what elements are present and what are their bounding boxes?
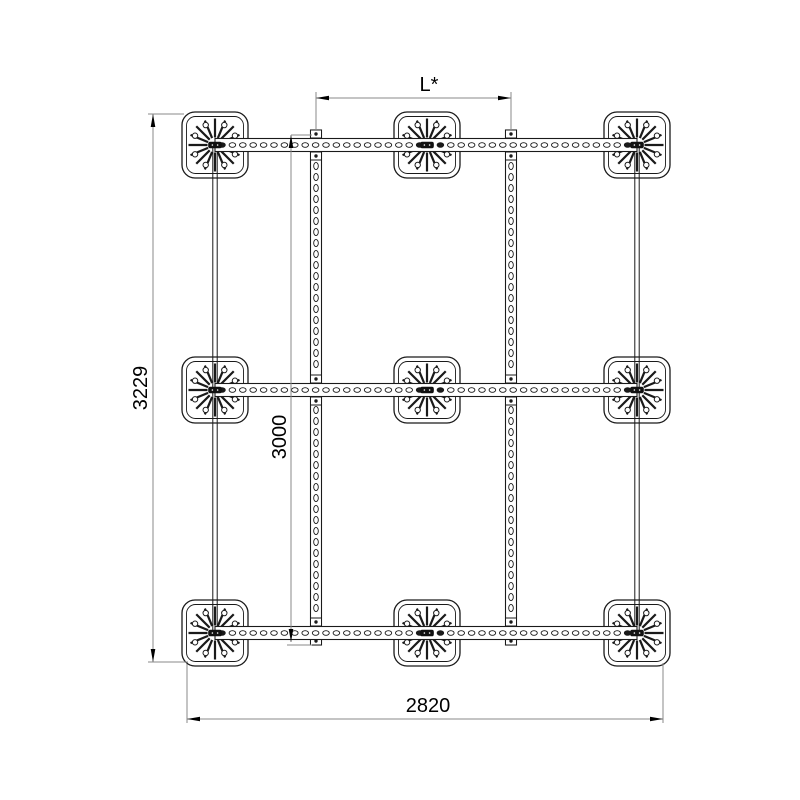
plate-bolt-hole	[232, 621, 237, 626]
rail-slot	[281, 631, 288, 636]
rail-slot	[448, 631, 455, 636]
rail-slot	[448, 388, 455, 393]
rail-slot	[396, 631, 403, 636]
plate-bolt-hole	[222, 650, 227, 655]
rail-slot	[583, 631, 590, 636]
hub-detail-dot	[217, 144, 219, 146]
rail-slot	[314, 250, 319, 257]
plate-hub	[208, 142, 222, 149]
rail-slot	[604, 388, 611, 393]
rail-slot	[437, 631, 444, 636]
rail-slot	[314, 195, 319, 202]
rail-slot	[364, 631, 371, 636]
rail-slot	[312, 631, 319, 636]
plate-hub	[630, 142, 644, 149]
rail-slot	[314, 483, 319, 490]
hub-block	[630, 630, 644, 637]
rail-slot	[552, 143, 559, 148]
rail-slot	[281, 388, 288, 393]
plate-bolt-hole	[644, 122, 649, 127]
hub-detail-dot	[429, 389, 431, 391]
rail-cap-bolt	[509, 399, 512, 402]
plate-bolt-hole	[415, 610, 420, 615]
rail-slot	[509, 527, 514, 534]
plate-bolt-hole	[434, 122, 439, 127]
hub-block	[208, 387, 222, 394]
plate-bolt-hole	[654, 378, 659, 383]
plate-bolt-hole	[654, 152, 659, 157]
plate-bolt-hole	[232, 152, 237, 157]
rail-slot	[229, 388, 236, 393]
plate-bolt-hole	[203, 367, 208, 372]
rail-slot	[271, 388, 278, 393]
rail-slot	[509, 560, 514, 567]
plate-bolt-hole	[192, 640, 197, 645]
hub-detail-dot	[639, 389, 641, 391]
plate-bolt-hole	[434, 162, 439, 167]
rail-slot	[509, 173, 514, 180]
rail-slot	[314, 327, 319, 334]
rail-slot	[541, 388, 548, 393]
rail-slot	[323, 388, 330, 393]
rail-slot	[562, 631, 569, 636]
rail-slot	[314, 428, 319, 435]
hub-block	[420, 142, 434, 149]
rail-slot	[510, 631, 517, 636]
rail-slot	[344, 631, 351, 636]
rail-slot	[520, 388, 527, 393]
plate-bolt-hole	[625, 650, 630, 655]
plate-hub	[420, 630, 434, 637]
plate-bolt-hole	[434, 610, 439, 615]
rail-slot	[593, 143, 600, 148]
plate-bolt-hole	[625, 407, 630, 412]
plate-bolt-hole	[654, 640, 659, 645]
rail-slot	[510, 388, 517, 393]
rail-slot	[509, 327, 514, 334]
plate-bolt-hole	[614, 640, 619, 645]
rail-slot	[314, 338, 319, 345]
rail-slot	[479, 143, 486, 148]
plate-bolt-hole	[232, 378, 237, 383]
plate-bolt-hole	[434, 407, 439, 412]
rail-slot	[520, 631, 527, 636]
plate-bolt-hole	[192, 152, 197, 157]
rail-slot	[260, 631, 267, 636]
rail-slot	[468, 631, 475, 636]
rail-slot	[314, 505, 319, 512]
rail-slot	[614, 631, 621, 636]
rail-slot	[375, 631, 382, 636]
dimension-arrow	[498, 96, 511, 101]
plate-bolt-hole	[415, 367, 420, 372]
rail-slot	[624, 388, 631, 393]
rail-slot	[541, 631, 548, 636]
rail-slot	[229, 631, 236, 636]
hub-detail-dot	[634, 389, 636, 391]
plate-bolt-hole	[644, 407, 649, 412]
rail-slot	[500, 388, 507, 393]
rail-slot	[314, 560, 319, 567]
rail-slot	[531, 143, 538, 148]
rail-slot	[354, 388, 361, 393]
rail-slot	[314, 349, 319, 356]
hub-detail-dot	[634, 632, 636, 634]
rail-slot	[593, 631, 600, 636]
rail-slot	[333, 631, 340, 636]
hub-detail-dot	[639, 632, 641, 634]
rail-slot	[271, 631, 278, 636]
rail-slot	[531, 631, 538, 636]
rail-slot	[509, 461, 514, 468]
rail-slot	[260, 143, 267, 148]
rail-slot	[458, 631, 465, 636]
rail-slot	[333, 388, 340, 393]
rail-slot	[271, 143, 278, 148]
plate-bolt-hole	[415, 650, 420, 655]
rail-slot	[572, 631, 579, 636]
rail-slot	[500, 143, 507, 148]
rail-slot	[572, 388, 579, 393]
rail-slot	[479, 388, 486, 393]
rail-slot	[541, 143, 548, 148]
plate-bolt-hole	[203, 610, 208, 615]
rail-slot	[240, 631, 247, 636]
rail-slot	[509, 360, 514, 367]
plate-bolt-hole	[404, 397, 409, 402]
rail-slot	[314, 217, 319, 224]
rail-slot	[468, 143, 475, 148]
plate-bolt-hole	[444, 378, 449, 383]
hub-detail-dot	[424, 389, 426, 391]
rail-slot	[314, 527, 319, 534]
rail-slot	[314, 283, 319, 290]
rail-slot	[314, 461, 319, 468]
rail-slot	[314, 549, 319, 556]
rail-slot	[314, 538, 319, 545]
dimension-arrow	[151, 114, 156, 127]
plate-bolt-hole	[415, 122, 420, 127]
rail-slot	[448, 143, 455, 148]
rail-slot	[314, 173, 319, 180]
rail-slot	[509, 184, 514, 191]
rail-slot	[509, 261, 514, 268]
rail-slot	[437, 143, 444, 148]
hub-block	[420, 387, 434, 394]
plate-bolt-hole	[625, 367, 630, 372]
rail-slot	[624, 631, 631, 636]
rail-slot	[509, 450, 514, 457]
rail-slot	[344, 143, 351, 148]
rail-slot	[509, 316, 514, 323]
rail-slot	[250, 143, 257, 148]
rail-slot	[572, 143, 579, 148]
hub-detail-dot	[634, 144, 636, 146]
plate-bolt-hole	[192, 133, 197, 138]
rail-slot	[520, 143, 527, 148]
dimension-arrow	[316, 96, 329, 101]
hub-block	[208, 142, 222, 149]
rail-slot	[314, 206, 319, 213]
rail-slot	[509, 417, 514, 424]
rail-cap-bolt	[314, 620, 317, 623]
rail-slot	[468, 388, 475, 393]
rail-slot	[509, 349, 514, 356]
dimension-label-top-span: L*	[420, 74, 439, 96]
plate-bolt-hole	[654, 397, 659, 402]
hub-block	[630, 387, 644, 394]
rail-slot	[509, 604, 514, 611]
rail-slot	[458, 143, 465, 148]
plate-hub	[630, 387, 644, 394]
plate-bolt-hole	[203, 122, 208, 127]
rail-slot	[314, 571, 319, 578]
dimension-label-rail-axis-depth: 3000	[269, 415, 291, 460]
rail-slot	[406, 631, 413, 636]
rail-slot	[314, 406, 319, 413]
rail-cap-bolt	[314, 132, 317, 135]
plate-bolt-hole	[232, 640, 237, 645]
rail-slot	[552, 388, 559, 393]
rail-slot	[314, 272, 319, 279]
rail-cap-bolt	[509, 154, 512, 157]
rail-cap-bolt	[314, 399, 317, 402]
rail-slot	[364, 143, 371, 148]
rail-slot	[354, 631, 361, 636]
rail-slot	[509, 538, 514, 545]
plate-hub	[630, 630, 644, 637]
rail-slot	[552, 631, 559, 636]
rail-slot	[509, 294, 514, 301]
plate-bolt-hole	[203, 407, 208, 412]
plate-bolt-hole	[192, 378, 197, 383]
rail-slot	[333, 143, 340, 148]
rail-slot	[562, 388, 569, 393]
plate-bolt-hole	[222, 367, 227, 372]
rail-slot	[509, 162, 514, 169]
rail-slot	[406, 388, 413, 393]
rail-slot	[314, 261, 319, 268]
drawing-canvas: L*322930002820	[0, 0, 800, 800]
plate-hub	[420, 142, 434, 149]
plate-bolt-hole	[222, 407, 227, 412]
rail-cap-bolt	[509, 377, 512, 380]
rail-slot	[509, 439, 514, 446]
rail-slot	[314, 472, 319, 479]
plate-bolt-hole	[434, 650, 439, 655]
hub-detail-dot	[212, 632, 214, 634]
hub-detail-dot	[429, 632, 431, 634]
rail-slot	[510, 143, 517, 148]
rail-cap-bolt	[314, 377, 317, 380]
hub-detail-dot	[212, 144, 214, 146]
rail-slot	[509, 582, 514, 589]
hub-detail-dot	[429, 144, 431, 146]
dimension-label-overall-depth: 3229	[130, 366, 152, 411]
rail-slot	[250, 631, 257, 636]
plate-bolt-hole	[614, 397, 619, 402]
rail-cap-bolt	[509, 132, 512, 135]
plate-bolt-hole	[415, 162, 420, 167]
hub-detail-dot	[212, 389, 214, 391]
rail-slot	[509, 338, 514, 345]
plate-bolt-hole	[444, 133, 449, 138]
frame-plan-drawing: L*322930002820	[0, 0, 800, 800]
rail-slot	[240, 143, 247, 148]
plate-bolt-hole	[614, 621, 619, 626]
plate-bolt-hole	[644, 650, 649, 655]
rail-slot	[314, 305, 319, 312]
hub-detail-dot	[424, 144, 426, 146]
rail-slot	[314, 593, 319, 600]
rail-slot	[593, 388, 600, 393]
rail-slot	[292, 388, 299, 393]
rail-slot	[437, 388, 444, 393]
hub-detail-dot	[217, 632, 219, 634]
plate-bolt-hole	[444, 621, 449, 626]
rail-slot	[323, 143, 330, 148]
rail-slot	[314, 439, 319, 446]
rail-slot	[614, 143, 621, 148]
hub-block	[208, 630, 222, 637]
rail-slot	[489, 143, 496, 148]
rail-slot	[314, 417, 319, 424]
rail-slot	[385, 631, 392, 636]
rail-slot	[385, 388, 392, 393]
rail-slot	[509, 472, 514, 479]
rail-slot	[314, 360, 319, 367]
rail-slot	[314, 184, 319, 191]
plate-bolt-hole	[404, 640, 409, 645]
rail-slot	[281, 143, 288, 148]
rail-slot	[314, 582, 319, 589]
plate-bolt-hole	[203, 162, 208, 167]
rail-slot	[509, 516, 514, 523]
hub-detail-dot	[424, 632, 426, 634]
rail-slot	[314, 316, 319, 323]
plate-bolt-hole	[444, 152, 449, 157]
rail-slot	[314, 516, 319, 523]
plate-bolt-hole	[625, 610, 630, 615]
rail-slot	[406, 143, 413, 148]
plate-bolt-hole	[644, 610, 649, 615]
rail-slot	[314, 228, 319, 235]
plate-bolt-hole	[614, 152, 619, 157]
rail-slot	[604, 143, 611, 148]
rail-slot	[229, 143, 236, 148]
plate-hub	[208, 630, 222, 637]
rail-slot	[531, 388, 538, 393]
plate-bolt-hole	[614, 378, 619, 383]
plate-bolt-hole	[415, 407, 420, 412]
rail-slot	[314, 162, 319, 169]
rail-slot	[500, 631, 507, 636]
rail-slot	[302, 388, 309, 393]
rail-slot	[302, 143, 309, 148]
rail-slot	[396, 388, 403, 393]
rail-slot	[323, 631, 330, 636]
rail-slot	[240, 388, 247, 393]
rail-slot	[314, 604, 319, 611]
rail-cap-bolt	[509, 620, 512, 623]
rail-slot	[364, 388, 371, 393]
plate-bolt-hole	[232, 397, 237, 402]
rail-slot	[312, 388, 319, 393]
rail-cap-bolt	[314, 154, 317, 157]
dimension-arrow	[650, 717, 663, 722]
rail-slot	[509, 406, 514, 413]
plate-bolt-hole	[444, 397, 449, 402]
rail-slot	[314, 494, 319, 501]
dimension-label-overall-width: 2820	[406, 695, 451, 717]
rail-slot	[509, 228, 514, 235]
rail-slot	[302, 631, 309, 636]
rail-slot	[312, 143, 319, 148]
plate-hub	[420, 387, 434, 394]
rail-slot	[250, 388, 257, 393]
plate-bolt-hole	[654, 133, 659, 138]
plate-bolt-hole	[192, 621, 197, 626]
rail-slot	[375, 388, 382, 393]
rail-slot	[354, 143, 361, 148]
rail-slot	[344, 388, 351, 393]
plate-bolt-hole	[222, 122, 227, 127]
rail-slot	[624, 143, 631, 148]
plate-bolt-hole	[404, 133, 409, 138]
dimension-arrow	[187, 717, 200, 722]
rail-slot	[509, 505, 514, 512]
rail-slot	[260, 388, 267, 393]
plate-bolt-hole	[192, 397, 197, 402]
rail-slot	[375, 143, 382, 148]
rail-slot	[509, 593, 514, 600]
rail-slot	[385, 143, 392, 148]
plate-hub	[208, 387, 222, 394]
rail-slot	[583, 143, 590, 148]
rail-slot	[509, 571, 514, 578]
rail-slot	[562, 143, 569, 148]
rail-slot	[509, 272, 514, 279]
rail-slot	[458, 388, 465, 393]
plate-bolt-hole	[203, 650, 208, 655]
hub-block	[420, 630, 434, 637]
plate-bolt-hole	[404, 152, 409, 157]
hub-block	[630, 142, 644, 149]
rail-slot	[314, 294, 319, 301]
rail-slot	[396, 143, 403, 148]
plate-bolt-hole	[625, 122, 630, 127]
plate-bolt-hole	[625, 162, 630, 167]
plate-bolt-hole	[644, 367, 649, 372]
plate-bolt-hole	[404, 621, 409, 626]
hub-detail-dot	[639, 144, 641, 146]
rail-slot	[604, 631, 611, 636]
plate-bolt-hole	[232, 133, 237, 138]
plate-bolt-hole	[614, 133, 619, 138]
plate-bolt-hole	[404, 378, 409, 383]
rail-slot	[509, 428, 514, 435]
plate-bolt-hole	[444, 640, 449, 645]
plate-bolt-hole	[654, 621, 659, 626]
plate-bolt-hole	[222, 610, 227, 615]
rail-slot	[509, 217, 514, 224]
rail-slot	[509, 483, 514, 490]
plate-bolt-hole	[644, 162, 649, 167]
rail-slot	[509, 305, 514, 312]
rail-slot	[489, 631, 496, 636]
rail-slot	[479, 631, 486, 636]
rail-slot	[489, 388, 496, 393]
